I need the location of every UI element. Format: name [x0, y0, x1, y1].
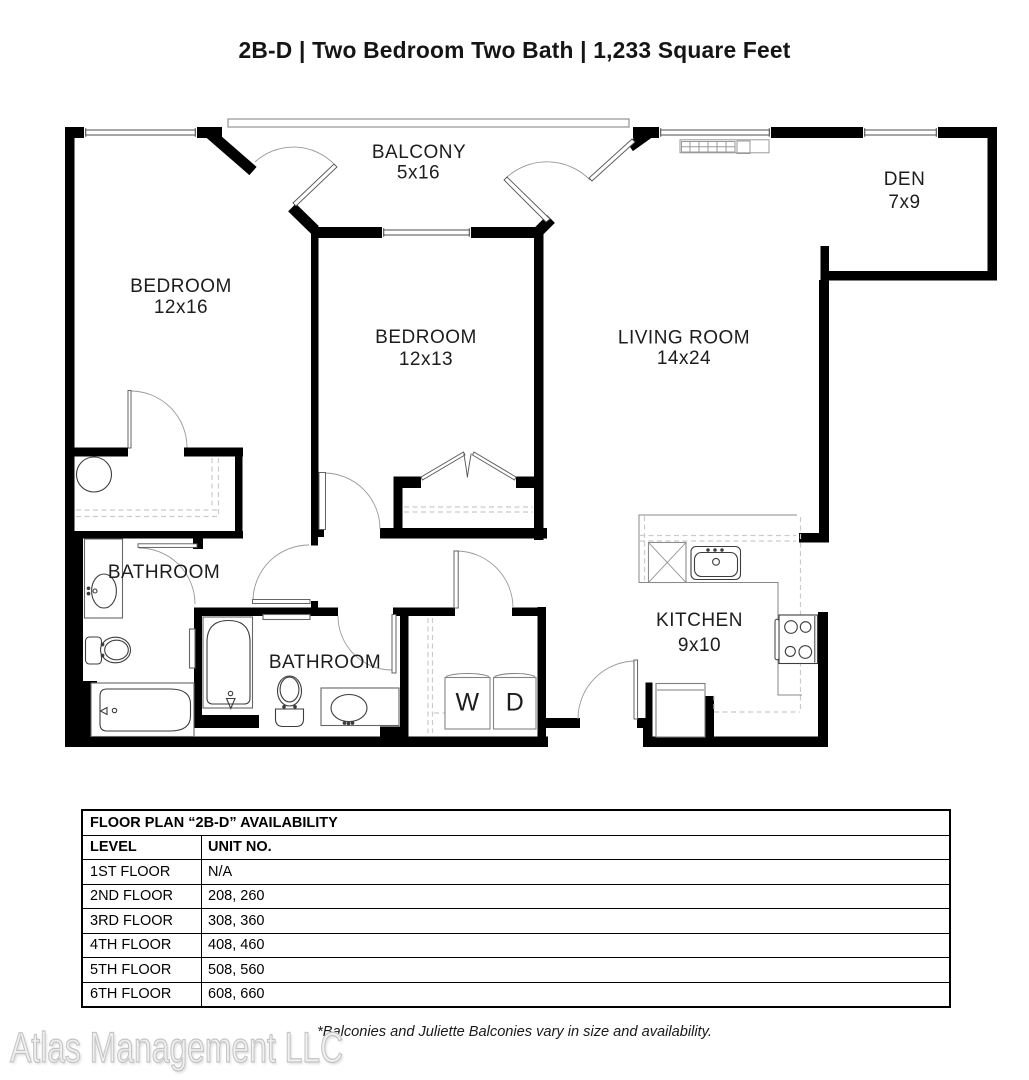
svg-text:DEN: DEN [884, 169, 926, 190]
svg-text:12x16: 12x16 [154, 297, 208, 318]
svg-text:BATHROOM: BATHROOM [108, 562, 220, 583]
svg-text:BATHROOM: BATHROOM [269, 652, 381, 673]
svg-text:D: D [506, 689, 525, 717]
svg-text:W: W [455, 689, 479, 717]
svg-text:KITCHEN: KITCHEN [656, 610, 743, 631]
svg-text:LIVING ROOM: LIVING ROOM [618, 328, 750, 349]
svg-text:5x16: 5x16 [397, 163, 440, 184]
svg-text:14x24: 14x24 [657, 348, 711, 369]
svg-text:9x10: 9x10 [678, 635, 721, 656]
svg-text:BEDROOM: BEDROOM [375, 327, 477, 348]
svg-text:7x9: 7x9 [888, 192, 920, 213]
svg-text:12x13: 12x13 [399, 349, 453, 370]
svg-text:BEDROOM: BEDROOM [130, 276, 232, 297]
svg-text:BALCONY: BALCONY [372, 142, 466, 163]
